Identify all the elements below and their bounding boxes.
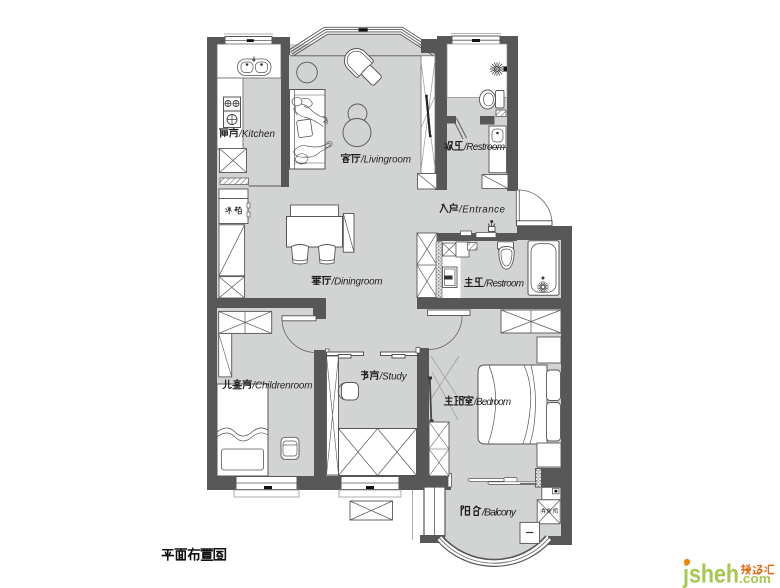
svg-text:/Restroom: /Restroom [483, 279, 524, 290]
svg-text:/Diningroom: /Diningroom [331, 277, 383, 288]
svg-text:jsheh: jsheh [682, 559, 739, 588]
svg-text:/Kitchen: /Kitchen [238, 129, 275, 140]
svg-text:/Study: /Study [379, 372, 408, 383]
svg-text:/Restroom: /Restroom [463, 142, 505, 153]
svg-text:/Bedroom: /Bedroom [473, 397, 511, 408]
svg-text:/Balcony: /Balcony [481, 507, 517, 519]
svg-text:/Childrenroom: /Childrenroom [251, 381, 312, 392]
svg-text:/Entrance: /Entrance [458, 205, 506, 216]
svg-text:/Livingroom: /Livingroom [360, 155, 411, 166]
